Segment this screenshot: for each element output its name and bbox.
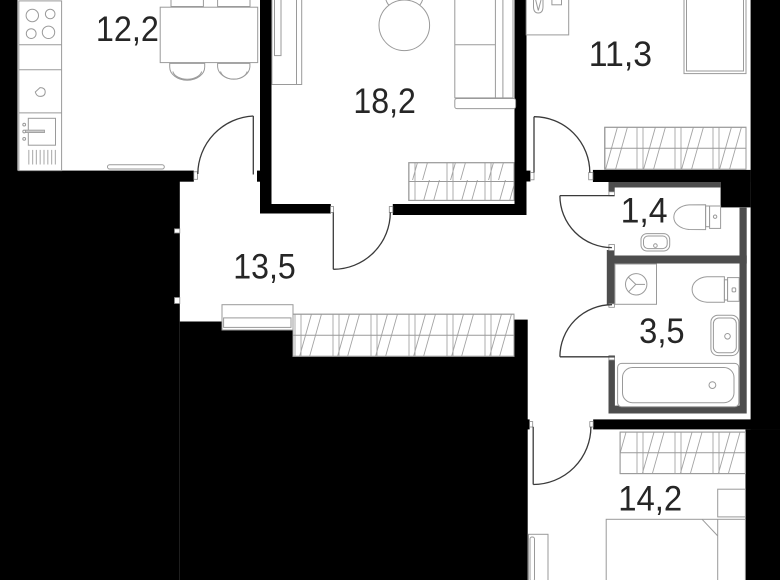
svg-text:11,3: 11,3 [589,34,652,74]
svg-text:14,2: 14,2 [618,479,682,519]
svg-text:12,2: 12,2 [96,9,159,49]
svg-text:3,5: 3,5 [639,311,685,351]
svg-text:1,4: 1,4 [621,191,668,231]
svg-text:13,5: 13,5 [233,247,296,287]
svg-text:18,2: 18,2 [353,81,416,121]
